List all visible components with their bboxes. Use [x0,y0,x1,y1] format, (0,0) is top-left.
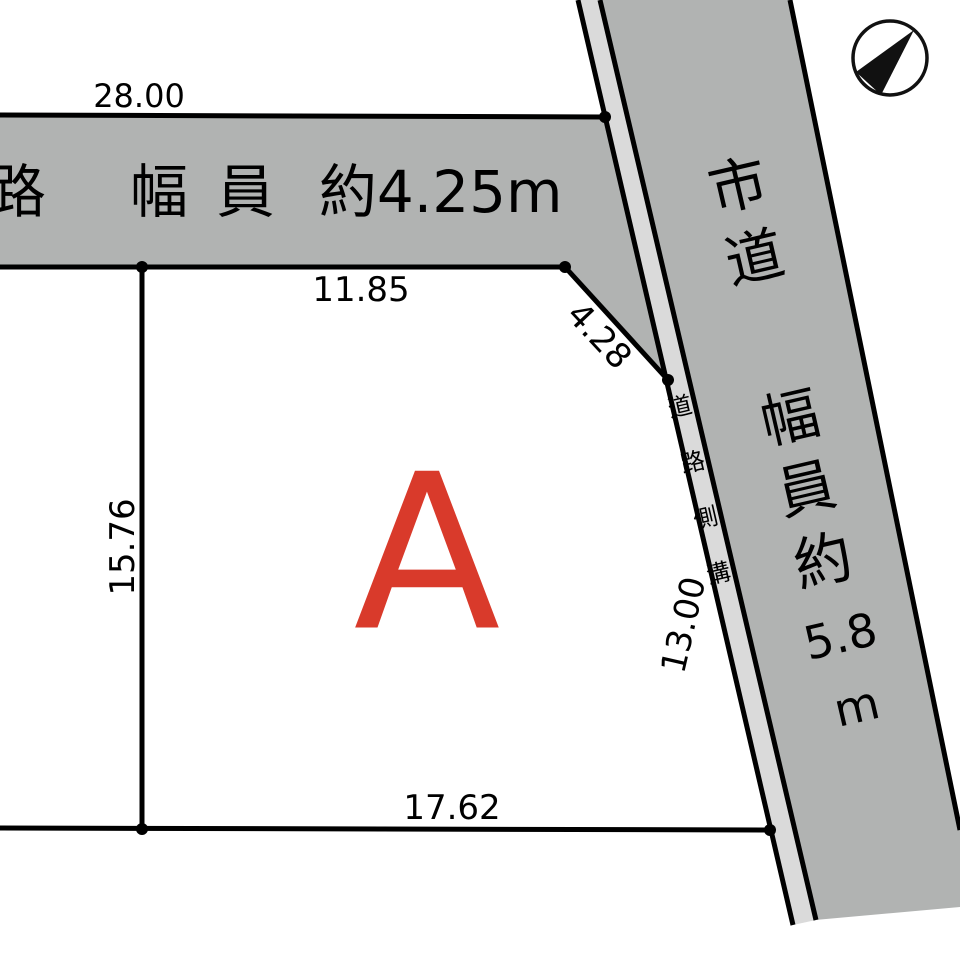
plot-survey-diagram: 28.00 11.85 4.28 15.76 13.00 17.62 道路 幅 … [0,0,960,960]
vertex-dot [764,824,776,836]
width-label-part: 幅 [130,158,188,226]
vertex-dot [136,261,148,273]
plot-south-boundary [0,828,770,830]
top-road-north-edge [0,115,605,117]
width-label-part: 員 [216,158,274,226]
dim-west-boundary: 15.76 [103,498,143,595]
north-arrow-icon [853,21,927,95]
plot-a-label: A [353,428,500,679]
vertex-dot [559,261,571,273]
width-label-part: 約4.25m [319,158,563,226]
dim-north-boundary: 11.85 [312,270,409,310]
top-road-width-label: 幅 員 約4.25m [130,158,563,226]
dim-top-road-frontage: 28.00 [93,77,185,115]
vertex-dot [662,374,674,386]
top-road-name-label: 道路 [0,158,46,226]
dim-south-boundary: 17.62 [403,788,500,828]
vertex-dot [136,823,148,835]
vertex-dot [599,111,611,123]
